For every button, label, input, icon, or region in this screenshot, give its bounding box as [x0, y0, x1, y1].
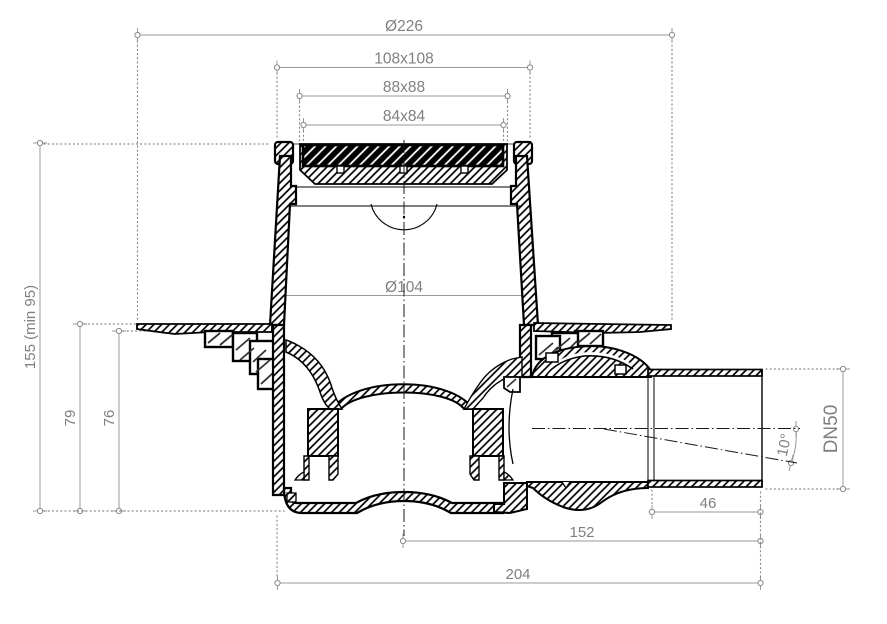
svg-text:204: 204 — [505, 566, 530, 583]
svg-text:155 (min 95): 155 (min 95) — [22, 285, 39, 369]
svg-text:88x88: 88x88 — [383, 79, 425, 96]
svg-text:46: 46 — [700, 495, 717, 512]
svg-text:DN50: DN50 — [821, 405, 842, 454]
svg-text:79: 79 — [62, 410, 79, 427]
svg-text:Ø226: Ø226 — [385, 18, 423, 35]
svg-text:84x84: 84x84 — [383, 108, 426, 125]
svg-text:152: 152 — [569, 524, 594, 541]
svg-text:108x108: 108x108 — [374, 51, 433, 68]
svg-text:76: 76 — [101, 410, 118, 427]
